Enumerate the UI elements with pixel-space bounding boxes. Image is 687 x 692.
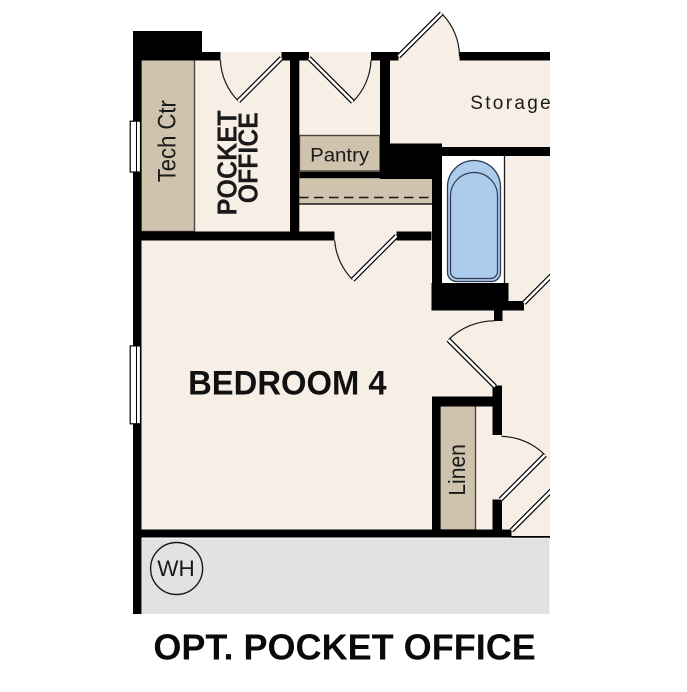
svg-text:OPT. POCKET OFFICE: OPT. POCKET OFFICE [153,627,536,668]
svg-text:Pantry: Pantry [310,145,369,167]
svg-text:WH: WH [157,556,195,581]
svg-text:Tech Ctr: Tech Ctr [154,100,182,182]
svg-text:Linen: Linen [444,444,470,496]
svg-text:OFFICE: OFFICE [232,112,263,203]
svg-text:BEDROOM 4: BEDROOM 4 [188,365,387,403]
